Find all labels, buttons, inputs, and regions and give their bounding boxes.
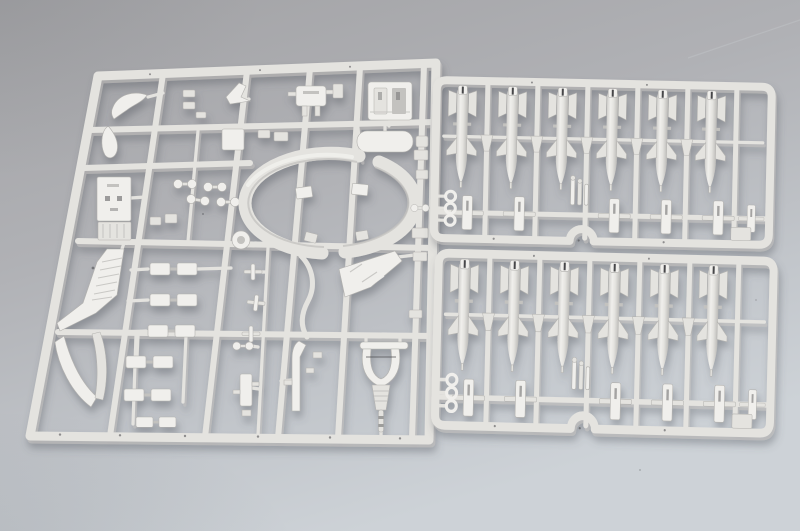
square-panel-part	[222, 129, 244, 150]
dust-speck	[639, 469, 641, 471]
small-part	[165, 214, 177, 223]
small-part	[412, 228, 428, 238]
photo-stage: Overhead studio photograph of three ligh…	[0, 0, 800, 531]
dust-speck	[755, 299, 757, 301]
small-part	[413, 252, 427, 261]
sprue-photo: Overhead studio photograph of three ligh…	[0, 0, 800, 531]
small-part	[274, 132, 288, 141]
round-wheel-part	[232, 231, 250, 249]
cockpit-tub-part	[97, 177, 131, 240]
dust-speck	[202, 213, 204, 215]
small-part	[258, 130, 270, 138]
equipment-block-part	[368, 82, 412, 120]
small-block-part	[333, 84, 343, 98]
small-part	[409, 310, 422, 318]
small-part	[414, 150, 428, 160]
small-part	[150, 217, 161, 225]
small-part	[416, 170, 428, 179]
